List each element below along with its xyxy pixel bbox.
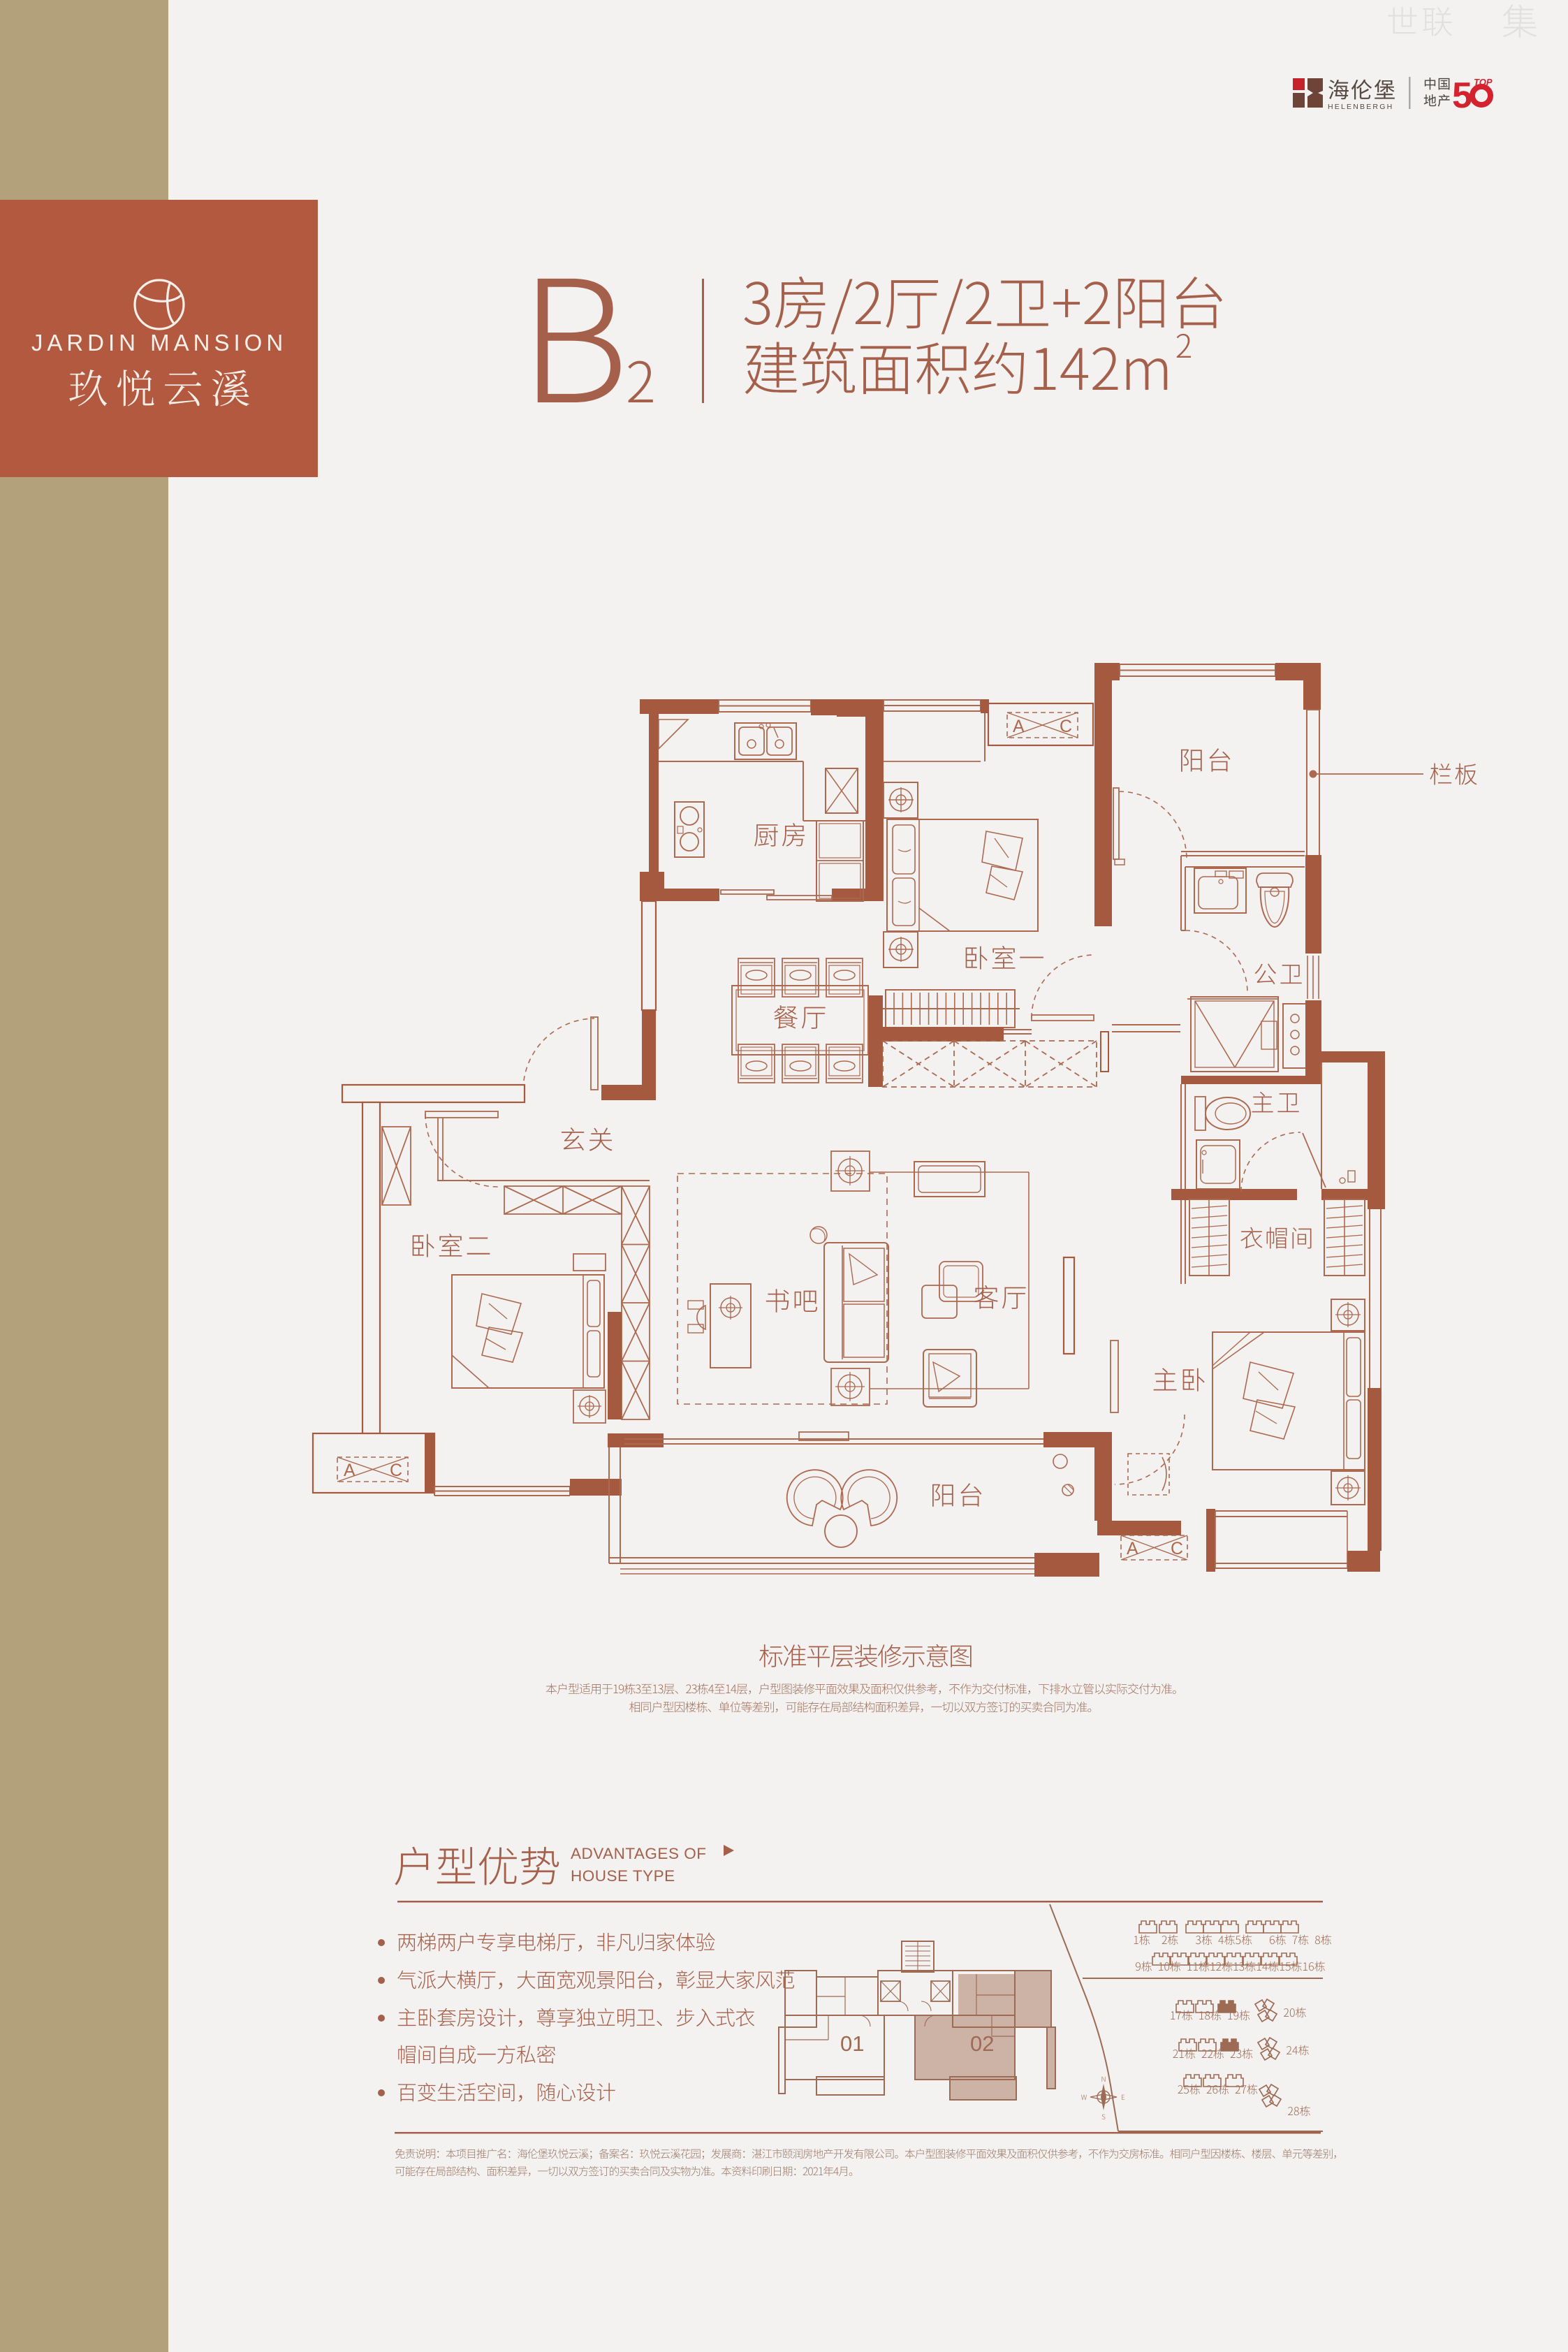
svg-text:C: C bbox=[390, 1461, 402, 1480]
svg-text:A: A bbox=[344, 1461, 356, 1480]
svg-text:C: C bbox=[1171, 1539, 1183, 1558]
svg-text:ADVANTAGES OF: ADVANTAGES OF bbox=[571, 1845, 706, 1862]
svg-text:HELENBERGH: HELENBERGH bbox=[1328, 103, 1393, 111]
svg-text:HOUSE TYPE: HOUSE TYPE bbox=[571, 1867, 675, 1885]
svg-text:C: C bbox=[1060, 717, 1072, 736]
svg-text:01: 01 bbox=[840, 2031, 864, 2056]
svg-text:A: A bbox=[1013, 717, 1025, 736]
svg-text:5: 5 bbox=[1452, 75, 1472, 116]
svg-text:TOP: TOP bbox=[1474, 77, 1493, 87]
svg-text:JARDIN MANSION: JARDIN MANSION bbox=[31, 330, 287, 356]
svg-text:A: A bbox=[1127, 1539, 1138, 1558]
svg-text:02: 02 bbox=[970, 2031, 994, 2056]
